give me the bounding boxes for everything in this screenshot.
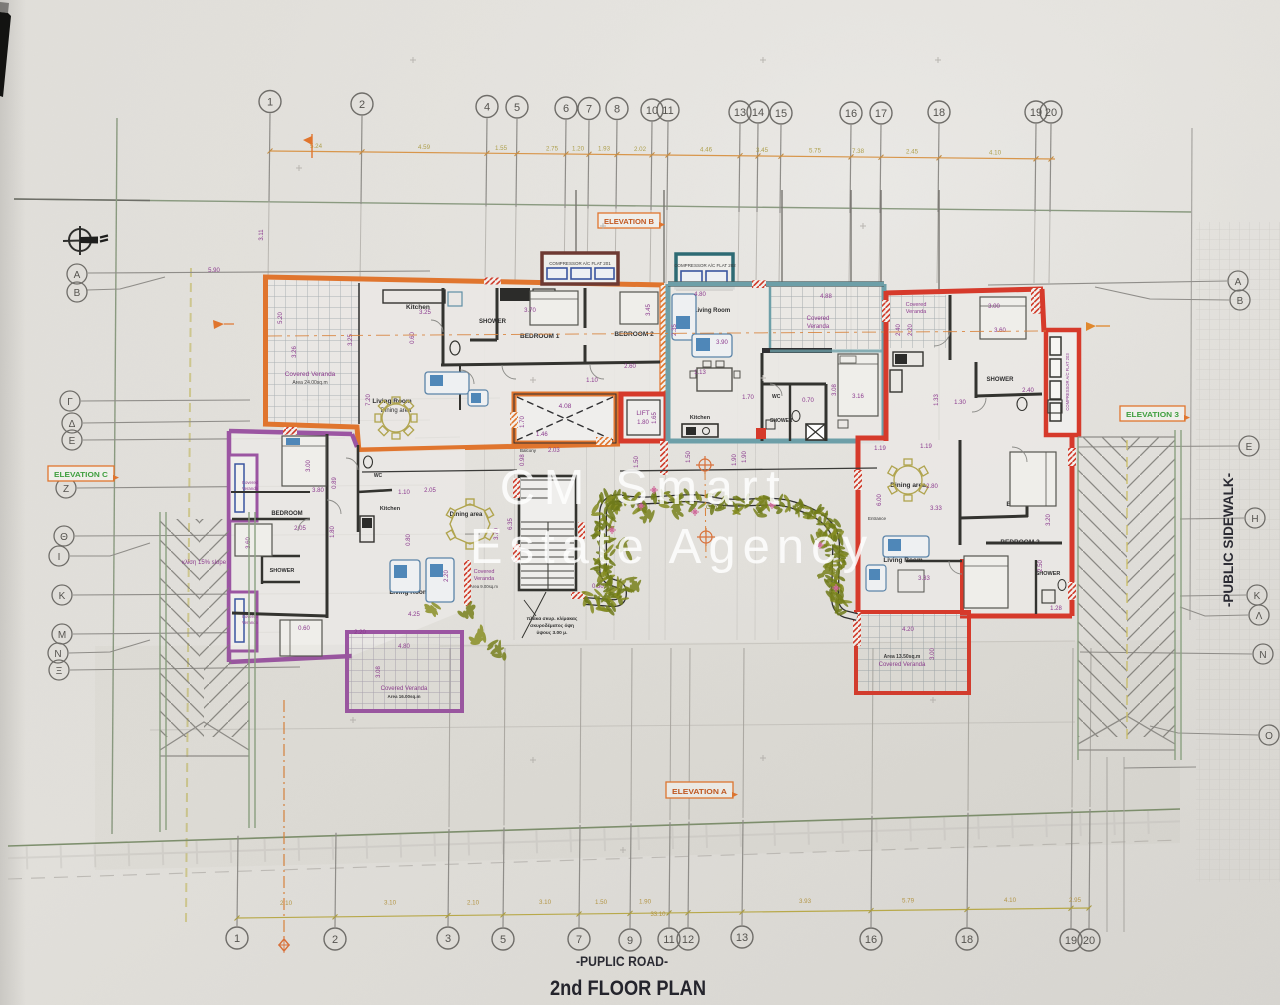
svg-text:πλάκα σκυρ. κλίμακας: πλάκα σκυρ. κλίμακας — [527, 616, 578, 622]
svg-text:11: 11 — [663, 934, 674, 946]
svg-text:2.75: 2.75 — [546, 145, 559, 152]
svg-text:Area 24.00sq.m: Area 24.00sq.m — [292, 380, 327, 386]
svg-text:1.80: 1.80 — [330, 526, 336, 538]
svg-text:1.55: 1.55 — [495, 145, 508, 152]
svg-text:7: 7 — [586, 103, 592, 115]
svg-text:5.20: 5.20 — [278, 312, 284, 324]
svg-text:1.20: 1.20 — [572, 146, 585, 153]
svg-text:4.59: 4.59 — [418, 144, 431, 151]
svg-text:4.88: 4.88 — [820, 294, 832, 300]
svg-text:I: I — [58, 552, 61, 563]
svg-text:BEDROOM: BEDROOM — [271, 511, 302, 517]
svg-text:2.95: 2.95 — [1069, 897, 1082, 904]
svg-text:3.45: 3.45 — [646, 304, 652, 316]
svg-text:2.03: 2.03 — [548, 448, 560, 454]
svg-text:K: K — [59, 591, 66, 602]
svg-text:1.19: 1.19 — [920, 444, 932, 450]
svg-text:SHOWER: SHOWER — [987, 377, 1015, 383]
svg-text:0.70: 0.70 — [802, 398, 814, 404]
svg-text:LIFT: LIFT — [636, 410, 649, 417]
svg-text:Balcony: Balcony — [520, 448, 537, 453]
svg-text:Covered: Covered — [242, 480, 259, 485]
svg-text:Veranda: Veranda — [242, 486, 259, 491]
svg-text:18: 18 — [933, 107, 945, 119]
svg-text:1: 1 — [234, 933, 240, 945]
svg-text:COMPRESSOR A/C FLAT 202: COMPRESSOR A/C FLAT 202 — [674, 263, 736, 268]
svg-text:5: 5 — [500, 934, 506, 946]
svg-text:3.10: 3.10 — [384, 900, 397, 907]
svg-text:2.20: 2.20 — [354, 630, 366, 636]
svg-text:3.08: 3.08 — [832, 384, 838, 396]
svg-text:3.26: 3.26 — [292, 346, 298, 358]
svg-text:6.00: 6.00 — [877, 494, 883, 506]
svg-text:0.80: 0.80 — [406, 534, 412, 546]
svg-text:σκυροδέματος όψη: σκυροδέματος όψη — [530, 623, 574, 629]
svg-text:3.70: 3.70 — [524, 308, 536, 314]
svg-text:Veranda: Veranda — [807, 324, 830, 330]
svg-text:Covered: Covered — [807, 316, 830, 322]
svg-text:K: K — [1254, 591, 1261, 602]
svg-text:0.60: 0.60 — [410, 332, 416, 344]
svg-text:1: 1 — [267, 96, 273, 108]
svg-text:1.10: 1.10 — [398, 490, 410, 496]
svg-text:Veranda: Veranda — [242, 620, 259, 625]
svg-text:O: O — [1265, 731, 1273, 742]
svg-text:3.16: 3.16 — [852, 394, 864, 400]
svg-text:4.46: 4.46 — [700, 147, 713, 154]
svg-text:1.50: 1.50 — [595, 899, 608, 906]
svg-text:17: 17 — [875, 108, 887, 120]
svg-text:ELEVATION 3: ELEVATION 3 — [1126, 410, 1179, 419]
svg-text:WC: WC — [772, 394, 781, 400]
svg-text:COMPRESSOR A/C FLAT 201: COMPRESSOR A/C FLAT 201 — [549, 261, 611, 266]
svg-text:2nd FLOOR PLAN: 2nd FLOOR PLAN — [550, 977, 706, 1000]
svg-text:Covered Veranda: Covered Veranda — [285, 371, 336, 378]
svg-text:2.10: 2.10 — [467, 899, 480, 906]
svg-text:Z: Z — [63, 484, 69, 495]
svg-text:3.10: 3.10 — [539, 899, 552, 906]
svg-text:1.70: 1.70 — [520, 416, 526, 428]
svg-text:Kitchen: Kitchen — [690, 415, 711, 421]
svg-text:ELEVATION B: ELEVATION B — [604, 217, 655, 226]
svg-text:15: 15 — [775, 108, 787, 120]
svg-text:4.80: 4.80 — [694, 292, 706, 298]
svg-text:4.25: 4.25 — [408, 612, 420, 618]
svg-text:1.70: 1.70 — [742, 395, 754, 401]
svg-text:5.79: 5.79 — [902, 898, 915, 905]
svg-text:N: N — [1259, 650, 1266, 661]
svg-text:11: 11 — [662, 105, 673, 117]
svg-text:N: N — [54, 649, 61, 660]
svg-text:19: 19 — [1065, 935, 1077, 947]
svg-text:Δ: Δ — [69, 419, 76, 430]
svg-text:CM Smart: CM Smart — [500, 461, 789, 515]
svg-text:1.19: 1.19 — [874, 446, 886, 452]
svg-text:16: 16 — [865, 934, 877, 946]
svg-text:A: A — [74, 270, 81, 281]
svg-text:2.05: 2.05 — [424, 488, 436, 494]
svg-text:1.33: 1.33 — [934, 394, 940, 406]
svg-text:6: 6 — [563, 103, 569, 115]
svg-text:1.28: 1.28 — [1050, 606, 1062, 612]
svg-text:Estate Agency: Estate Agency — [470, 520, 874, 574]
svg-text:13: 13 — [736, 932, 748, 944]
svg-text:3.80: 3.80 — [312, 488, 324, 494]
svg-text:2.05: 2.05 — [294, 526, 306, 532]
svg-text:16: 16 — [845, 108, 857, 120]
svg-text:9: 9 — [627, 935, 633, 947]
svg-text:COMPRESSOR A/C FLAT 203: COMPRESSOR A/C FLAT 203 — [1065, 353, 1070, 411]
svg-text:7.38: 7.38 — [852, 148, 865, 155]
svg-text:2.20: 2.20 — [908, 324, 914, 336]
svg-text:1.13: 1.13 — [694, 370, 706, 376]
svg-text:19: 19 — [1030, 107, 1042, 119]
svg-text:2.45: 2.45 — [906, 149, 919, 156]
svg-text:18: 18 — [961, 934, 973, 946]
svg-text:H: H — [1251, 514, 1258, 525]
svg-text:3.33: 3.33 — [918, 576, 930, 582]
svg-text:M: M — [58, 630, 66, 641]
svg-text:A: A — [1235, 277, 1242, 288]
svg-text:3.25: 3.25 — [419, 310, 431, 316]
svg-text:Λ: Λ — [1256, 611, 1263, 622]
svg-text:2.40: 2.40 — [1022, 388, 1034, 394]
svg-text:2.20: 2.20 — [444, 570, 450, 582]
svg-text:12: 12 — [682, 934, 694, 946]
svg-text:Area 9.00sq.m: Area 9.00sq.m — [470, 584, 498, 589]
svg-text:3.33: 3.33 — [930, 506, 942, 512]
svg-text:14: 14 — [752, 107, 764, 119]
svg-text:3.20: 3.20 — [1046, 514, 1052, 526]
svg-text:5.90: 5.90 — [208, 268, 220, 274]
svg-text:2.60: 2.60 — [624, 364, 636, 370]
svg-text:2.10: 2.10 — [280, 900, 293, 907]
svg-text:3.93: 3.93 — [799, 898, 812, 905]
svg-text:E: E — [1246, 442, 1253, 453]
svg-text:-PUBLIC SIDEWALK-: -PUBLIC SIDEWALK- — [1221, 473, 1236, 607]
svg-text:Veranda: Veranda — [906, 309, 927, 315]
svg-text:20: 20 — [1045, 107, 1057, 119]
svg-text:33.10: 33.10 — [650, 912, 666, 918]
svg-text:WC: WC — [374, 473, 383, 479]
svg-text:20: 20 — [1083, 935, 1095, 947]
svg-text:0.89: 0.89 — [332, 477, 338, 489]
svg-text:κλίση 15% slope: κλίση 15% slope — [182, 560, 227, 566]
svg-text:1.90: 1.90 — [639, 899, 652, 906]
svg-text:8: 8 — [614, 103, 620, 115]
svg-text:B: B — [74, 288, 81, 299]
svg-text:5: 5 — [514, 102, 520, 114]
svg-text:Θ: Θ — [60, 532, 68, 543]
svg-text:ELEVATION C: ELEVATION C — [54, 470, 109, 479]
svg-text:Γ: Γ — [67, 397, 73, 408]
svg-text:2: 2 — [359, 99, 365, 111]
svg-text:3.45: 3.45 — [756, 147, 769, 154]
svg-text:1.80: 1.80 — [637, 420, 649, 426]
svg-text:-PUPLIC ROAD-: -PUPLIC ROAD- — [576, 954, 668, 969]
svg-text:2: 2 — [332, 934, 338, 946]
svg-text:Covered: Covered — [906, 302, 927, 308]
svg-text:2.50: 2.50 — [1038, 560, 1044, 572]
svg-text:ύψους 3.00 μ.: ύψους 3.00 μ. — [537, 630, 568, 636]
svg-text:1.10: 1.10 — [586, 378, 598, 384]
svg-text:SHOWER: SHOWER — [770, 418, 793, 424]
svg-text:Living Room: Living Room — [883, 557, 923, 564]
svg-text:E: E — [69, 436, 76, 447]
svg-text:4: 4 — [484, 101, 490, 113]
svg-text:3.90: 3.90 — [716, 340, 728, 346]
svg-text:3.00: 3.00 — [988, 304, 1000, 310]
svg-text:7.20: 7.20 — [366, 394, 372, 406]
svg-text:5.75: 5.75 — [809, 148, 822, 155]
svg-text:4.10: 4.10 — [989, 149, 1002, 156]
svg-text:Ξ: Ξ — [56, 666, 63, 677]
svg-text:3.11: 3.11 — [259, 229, 265, 241]
svg-text:1.65: 1.65 — [652, 412, 658, 424]
svg-text:4.10: 4.10 — [1004, 897, 1017, 904]
svg-text:1.46: 1.46 — [536, 432, 548, 438]
svg-text:SHOWER: SHOWER — [270, 568, 295, 574]
svg-text:2.80: 2.80 — [926, 484, 938, 490]
svg-text:1.93: 1.93 — [598, 146, 611, 153]
svg-text:3.00: 3.00 — [306, 460, 312, 472]
svg-text:Kitchen: Kitchen — [380, 506, 401, 512]
svg-text:4.20: 4.20 — [902, 627, 914, 633]
svg-text:BEDROOM 3: BEDROOM 3 — [1000, 539, 1040, 546]
svg-text:2.35: 2.35 — [672, 324, 678, 336]
svg-text:Veranda: Veranda — [474, 576, 495, 582]
svg-text:Living Room: Living Room — [694, 308, 730, 314]
svg-text:0.60: 0.60 — [298, 626, 310, 632]
svg-text:SHOWER: SHOWER — [479, 319, 507, 325]
svg-text:B: B — [1237, 296, 1244, 307]
svg-text:13: 13 — [734, 107, 746, 119]
svg-text:3: 3 — [445, 933, 451, 945]
svg-text:4.08: 4.08 — [559, 403, 572, 410]
svg-text:1.30: 1.30 — [954, 400, 966, 406]
svg-text:10: 10 — [646, 105, 658, 117]
svg-text:BEDROOM 2: BEDROOM 2 — [614, 331, 654, 338]
svg-text:2.40: 2.40 — [896, 324, 902, 336]
svg-text:7: 7 — [576, 934, 582, 946]
svg-text:2.02: 2.02 — [634, 146, 647, 153]
